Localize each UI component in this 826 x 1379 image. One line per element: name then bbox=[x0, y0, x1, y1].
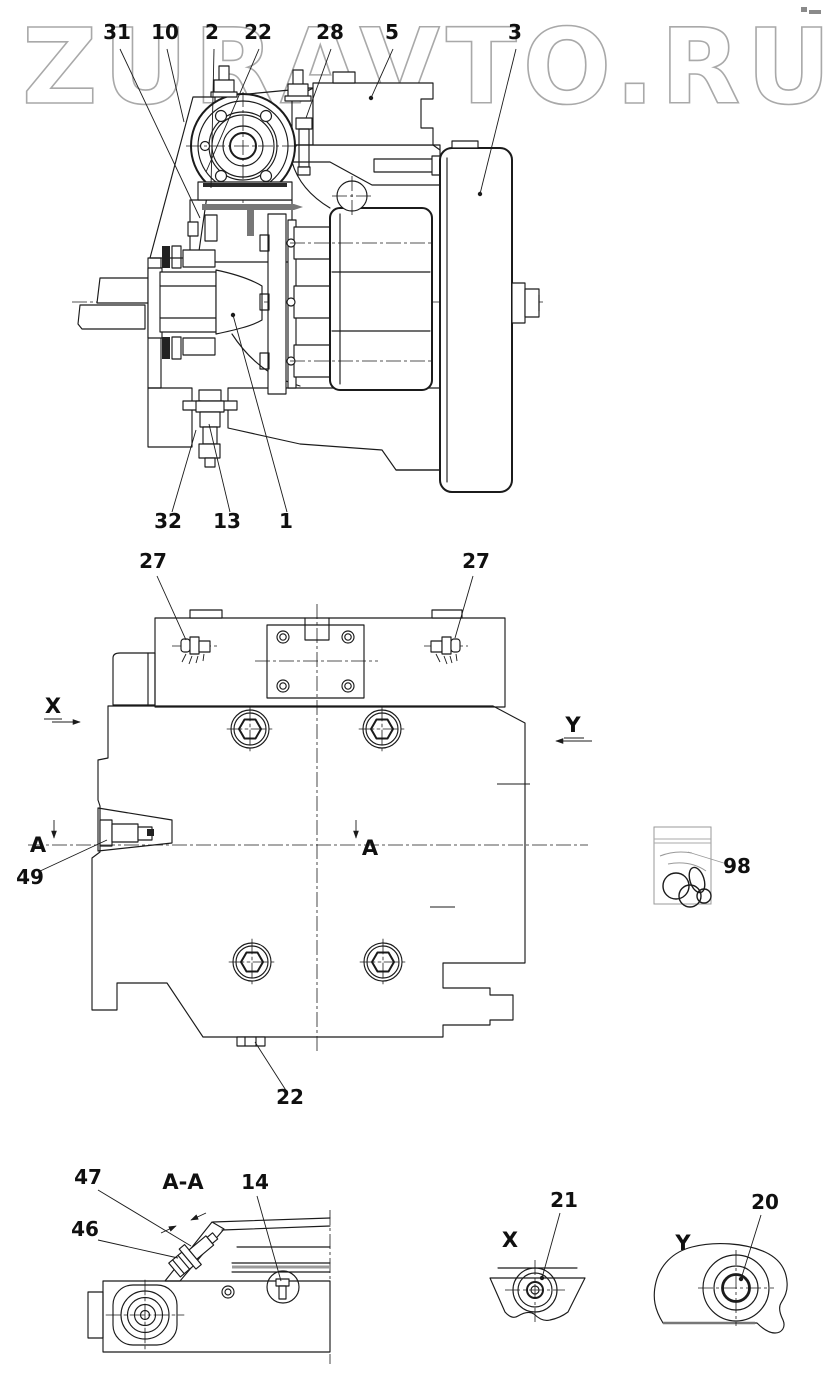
callout-20: 20 bbox=[751, 1190, 779, 1214]
callout-3: 3 bbox=[508, 20, 522, 44]
port-block bbox=[313, 72, 442, 216]
callout-27-left: 27 bbox=[139, 549, 167, 573]
callout-22-top: 22 bbox=[244, 20, 272, 44]
plug-22 bbox=[237, 1037, 265, 1046]
callout-2: 2 bbox=[205, 20, 219, 44]
o-rings bbox=[663, 865, 711, 907]
plug-14 bbox=[267, 1271, 299, 1303]
section-aa-title: A-A bbox=[162, 1170, 204, 1194]
relief-valve-plug bbox=[106, 1280, 184, 1350]
view-y-title: Y bbox=[674, 1231, 691, 1255]
view-arrow-x: X bbox=[44, 694, 80, 722]
callout-13: 13 bbox=[213, 509, 241, 533]
callout-22-plan: 22 bbox=[276, 1085, 304, 1109]
fitting-27-left bbox=[172, 637, 218, 664]
callout-10: 10 bbox=[151, 20, 179, 44]
callout-46: 46 bbox=[71, 1217, 99, 1241]
view-x: X 21 bbox=[490, 1188, 585, 1322]
callout-47: 47 bbox=[74, 1165, 102, 1189]
section-a-left-label: A bbox=[30, 833, 47, 857]
callout-98: 98 bbox=[723, 854, 751, 878]
callout-21: 21 bbox=[550, 1188, 578, 1212]
view-arrow-y: Y bbox=[556, 713, 592, 741]
valve-plate-pistons bbox=[260, 208, 432, 394]
callout-14: 14 bbox=[241, 1170, 269, 1194]
cover-plate bbox=[255, 625, 378, 698]
callout-1: 1 bbox=[279, 509, 293, 533]
callout-5: 5 bbox=[385, 20, 399, 44]
view-x-label: X bbox=[45, 694, 61, 718]
view-x-title: X bbox=[502, 1228, 518, 1252]
section-marker-a-left: A bbox=[30, 820, 54, 857]
section-marker-a-right: A bbox=[356, 820, 379, 860]
technical-drawing: ZURAVTO.RU bbox=[0, 0, 826, 1379]
fitting-27-right bbox=[424, 637, 468, 664]
callout-27-right: 27 bbox=[462, 549, 490, 573]
socket-bolts bbox=[227, 706, 406, 985]
parts-diagram-page: ZURAVTO.RU bbox=[0, 0, 826, 1379]
callout-31: 31 bbox=[103, 20, 131, 44]
watermark-text: ZURAVTO.RU bbox=[22, 6, 826, 128]
plug-49 bbox=[98, 808, 172, 851]
callout-28: 28 bbox=[316, 20, 344, 44]
section-aa-view: A-A bbox=[71, 1165, 330, 1364]
plan-view: X Y A A 27 27 49 22 bbox=[16, 549, 751, 1109]
cylinder-cone-part1 bbox=[216, 270, 262, 334]
callout-49: 49 bbox=[16, 865, 44, 889]
view-y: Y 20 bbox=[654, 1190, 787, 1333]
drive-shaft bbox=[78, 246, 262, 359]
section-a-right-label: A bbox=[362, 836, 379, 860]
callout-32: 32 bbox=[154, 509, 182, 533]
seal-kit-bag: 98 bbox=[654, 827, 751, 907]
fitting-46-47 bbox=[166, 1226, 223, 1280]
mounting-disc bbox=[440, 141, 539, 492]
view-y-label: Y bbox=[564, 713, 581, 737]
